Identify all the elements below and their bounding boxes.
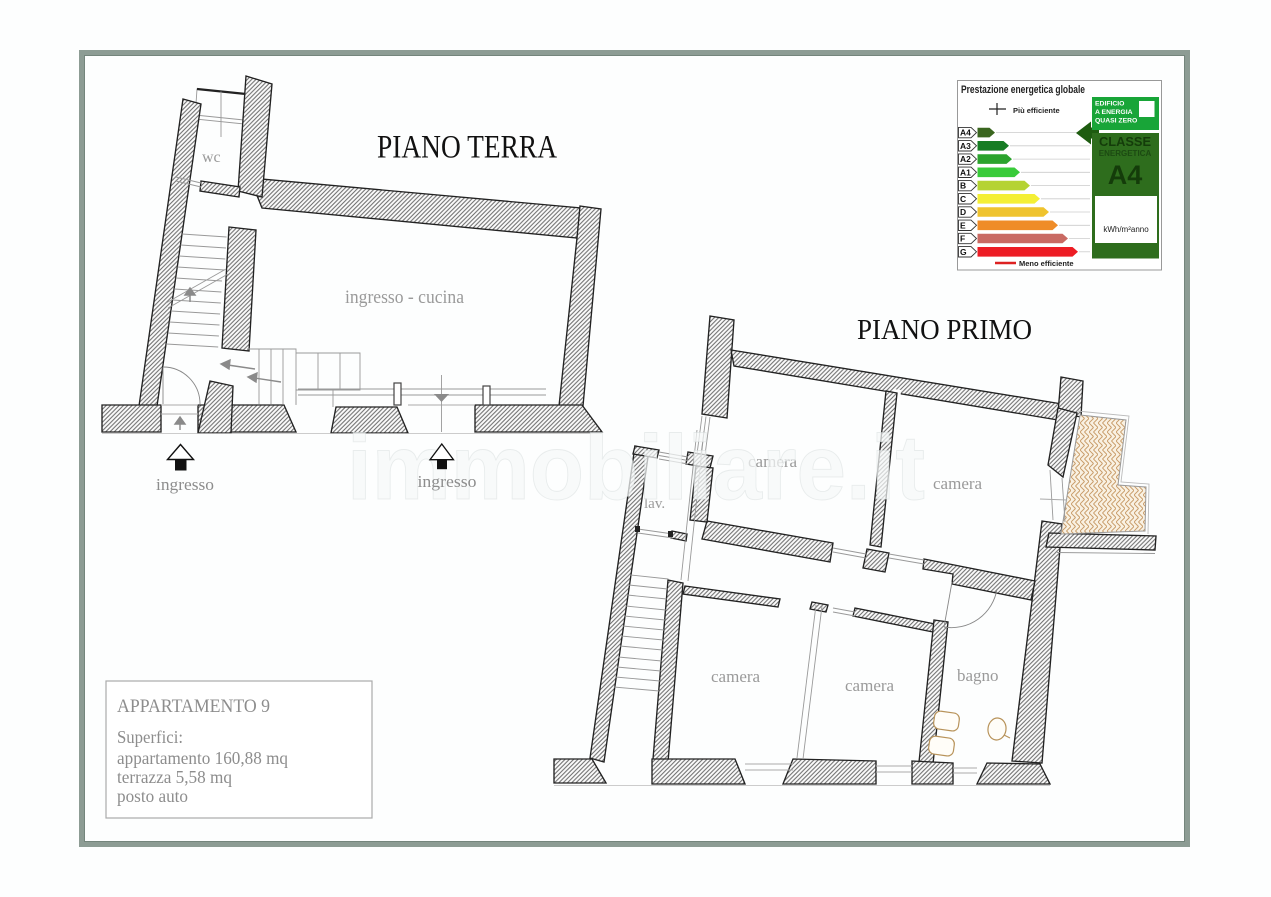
svg-text:D: D — [960, 207, 966, 217]
svg-text:ENERGETICA: ENERGETICA — [1099, 149, 1152, 158]
svg-text:posto auto: posto auto — [117, 786, 188, 806]
svg-text:C: C — [960, 194, 966, 204]
svg-text:G: G — [960, 247, 967, 257]
svg-text:appartamento 160,88 mq: appartamento 160,88 mq — [117, 748, 288, 768]
svg-text:EDIFICIO: EDIFICIO — [1095, 101, 1124, 108]
svg-text:wc: wc — [202, 149, 221, 166]
svg-text:A ENERGIA: A ENERGIA — [1095, 109, 1133, 116]
svg-text:Superfici:: Superfici: — [117, 727, 183, 747]
svg-text:A3: A3 — [960, 141, 971, 151]
svg-text:immobiliare.it: immobiliare.it — [347, 417, 925, 519]
svg-text:A4: A4 — [960, 128, 971, 138]
svg-text:ingresso - cucina: ingresso - cucina — [345, 288, 464, 308]
svg-text:F: F — [960, 234, 965, 244]
svg-text:bagno: bagno — [957, 666, 999, 685]
svg-text:ingresso: ingresso — [418, 472, 477, 491]
svg-text:Meno efficiente: Meno efficiente — [1019, 259, 1074, 268]
svg-text:APPARTAMENTO 9: APPARTAMENTO 9 — [117, 696, 270, 717]
svg-text:camera: camera — [845, 676, 895, 695]
svg-text:E: E — [960, 220, 966, 230]
svg-text:QUASI ZERO: QUASI ZERO — [1095, 118, 1137, 125]
svg-text:camera: camera — [933, 474, 983, 493]
svg-text:kWh/m²anno: kWh/m²anno — [1103, 225, 1149, 234]
svg-text:A4: A4 — [1108, 160, 1143, 190]
svg-text:Prestazione energetica globale: Prestazione energetica globale — [961, 84, 1085, 96]
svg-text:B: B — [960, 181, 966, 191]
svg-text:camera: camera — [711, 667, 761, 686]
svg-text:ingresso: ingresso — [156, 475, 214, 494]
svg-text:A2: A2 — [960, 154, 971, 164]
svg-text:PIANO TERRA: PIANO TERRA — [377, 130, 557, 166]
svg-text:terrazza 5,58 mq: terrazza 5,58 mq — [117, 767, 232, 787]
svg-text:Più efficiente: Più efficiente — [1013, 106, 1060, 115]
svg-text:CLASSE: CLASSE — [1099, 134, 1151, 149]
svg-text:A1: A1 — [960, 167, 971, 177]
svg-text:PIANO PRIMO: PIANO PRIMO — [857, 315, 1032, 346]
